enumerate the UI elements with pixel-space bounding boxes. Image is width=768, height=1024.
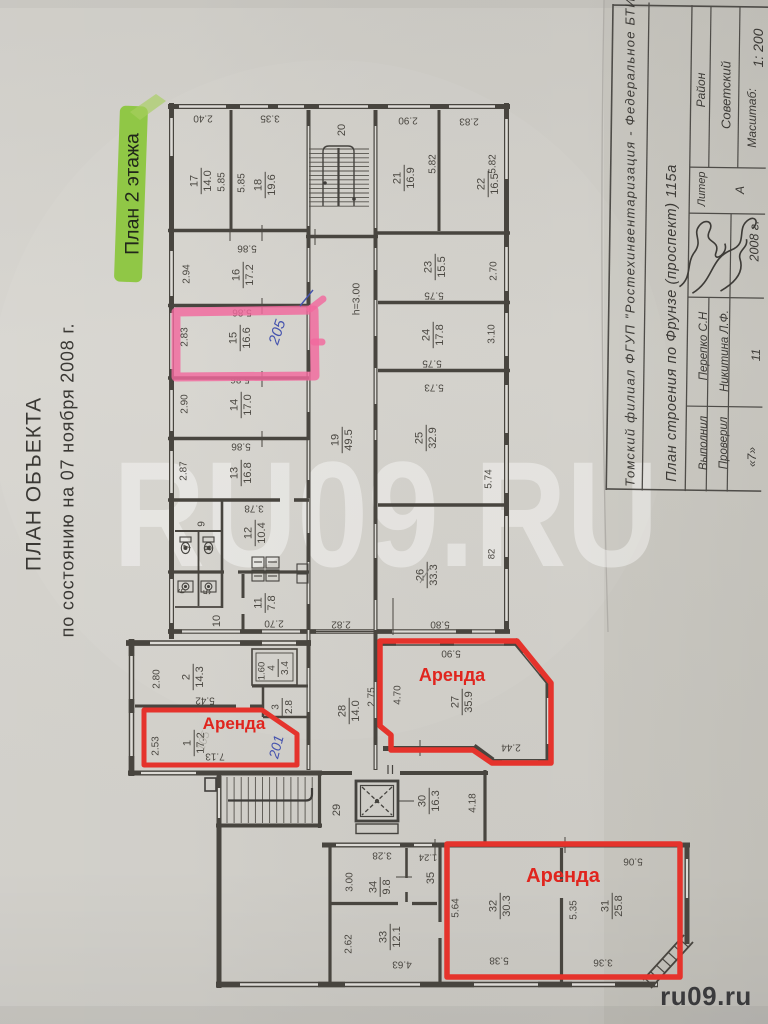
svg-text:14: 14 xyxy=(229,399,241,411)
svg-text:17.8: 17.8 xyxy=(434,324,446,345)
svg-text:5.38: 5.38 xyxy=(489,955,509,966)
svg-text:2.62: 2.62 xyxy=(344,934,355,954)
svg-text:А: А xyxy=(733,186,747,195)
svg-text:2.90: 2.90 xyxy=(180,394,191,414)
svg-text:29: 29 xyxy=(331,804,343,816)
svg-text:7.8: 7.8 xyxy=(266,595,278,610)
svg-text:Литер: Литер xyxy=(696,171,708,207)
svg-text:7.13: 7.13 xyxy=(205,751,225,762)
svg-text:25: 25 xyxy=(414,432,426,444)
svg-text:2.40: 2.40 xyxy=(193,113,213,124)
svg-text:9: 9 xyxy=(197,521,208,527)
svg-text:16: 16 xyxy=(231,269,243,281)
svg-text:2.70: 2.70 xyxy=(489,261,500,281)
svg-text:ПЛАН ОБЪЕКТА: ПЛАН ОБЪЕКТА xyxy=(22,397,45,571)
svg-text:17.0: 17.0 xyxy=(242,394,254,415)
svg-text:18: 18 xyxy=(253,179,265,191)
svg-text:14.0: 14.0 xyxy=(350,700,362,721)
svg-text:5.06: 5.06 xyxy=(623,856,643,867)
svg-text:25.8: 25.8 xyxy=(613,895,625,916)
svg-text:15: 15 xyxy=(228,332,240,344)
svg-text:31: 31 xyxy=(600,900,612,912)
svg-text:2.53: 2.53 xyxy=(151,736,162,756)
svg-text:5.82: 5.82 xyxy=(428,154,439,174)
svg-text:3.10: 3.10 xyxy=(487,324,498,344)
svg-text:2.82: 2.82 xyxy=(331,619,351,630)
svg-text:4.63: 4.63 xyxy=(392,959,412,970)
svg-text:5.75: 5.75 xyxy=(424,290,444,301)
svg-text:5.86: 5.86 xyxy=(231,441,251,452)
svg-text:2: 2 xyxy=(181,674,193,680)
svg-text:2.87: 2.87 xyxy=(179,461,190,481)
svg-text:27: 27 xyxy=(450,696,462,708)
svg-text:2.44: 2.44 xyxy=(501,742,521,753)
svg-text:Масштаб:: Масштаб: xyxy=(745,88,759,147)
svg-text:Аренда: Аренда xyxy=(526,865,601,887)
svg-text:16.6: 16.6 xyxy=(241,327,253,348)
svg-text:19: 19 xyxy=(330,434,342,446)
svg-text:5.73: 5.73 xyxy=(424,382,444,393)
svg-text:17.2: 17.2 xyxy=(244,264,256,285)
svg-text:5.42: 5.42 xyxy=(195,695,215,706)
svg-text:14.0: 14.0 xyxy=(202,170,214,191)
svg-text:3.00: 3.00 xyxy=(345,872,356,892)
svg-text:2.83: 2.83 xyxy=(459,116,479,127)
svg-text:Томский филиал ФГУП "Ростехинв: Томский филиал ФГУП "Ростехинвентаризаци… xyxy=(623,0,638,487)
svg-text:32.9: 32.9 xyxy=(427,427,439,448)
svg-text:4: 4 xyxy=(267,665,278,671)
svg-text:Перепко С.Н: Перепко С.Н xyxy=(698,311,710,380)
svg-text:13: 13 xyxy=(229,467,241,479)
svg-text:12.1: 12.1 xyxy=(391,926,403,947)
svg-text:6: 6 xyxy=(178,588,189,594)
svg-text:2.80: 2.80 xyxy=(152,669,163,689)
svg-text:Район: Район xyxy=(694,72,708,107)
svg-text:22: 22 xyxy=(476,178,488,190)
svg-text:32: 32 xyxy=(488,900,500,912)
svg-text:5: 5 xyxy=(203,589,214,595)
svg-text:План 2 этажа: План 2 этажа xyxy=(121,133,143,255)
svg-text:24: 24 xyxy=(421,329,433,341)
svg-text:21: 21 xyxy=(392,172,404,184)
svg-text:Советский: Советский xyxy=(719,61,734,129)
svg-text:9.8: 9.8 xyxy=(381,879,393,894)
svg-text:16.5: 16.5 xyxy=(489,173,501,194)
svg-text:16.9: 16.9 xyxy=(405,167,417,188)
svg-text:2.83: 2.83 xyxy=(180,327,191,347)
svg-text:Выполнил: Выполнил xyxy=(698,415,710,470)
svg-text:5.80: 5.80 xyxy=(430,619,450,630)
svg-text:12: 12 xyxy=(243,527,255,539)
svg-text:16.3: 16.3 xyxy=(430,790,442,811)
svg-text:Аренда: Аренда xyxy=(203,714,266,733)
svg-text:1: 200: 1: 200 xyxy=(750,28,766,67)
svg-text:82: 82 xyxy=(487,549,498,560)
svg-text:3.35: 3.35 xyxy=(260,113,280,124)
svg-text:23: 23 xyxy=(423,261,435,273)
svg-text:1.24: 1.24 xyxy=(419,852,438,863)
svg-text:16.8: 16.8 xyxy=(242,462,254,483)
svg-text:28: 28 xyxy=(337,705,349,717)
svg-text:33: 33 xyxy=(378,931,390,943)
svg-text:2.94: 2.94 xyxy=(182,264,193,284)
svg-text:«7»: «7» xyxy=(745,447,759,467)
svg-text:1: 1 xyxy=(182,740,194,746)
svg-text:35.9: 35.9 xyxy=(463,691,475,712)
svg-text:5.64: 5.64 xyxy=(451,898,462,918)
svg-text:План строения по Фрунзе (просп: План строения по Фрунзе (проспект) 115а xyxy=(664,164,680,482)
svg-text:h=3.00: h=3.00 xyxy=(351,283,363,316)
svg-text:17: 17 xyxy=(189,175,201,187)
svg-text:3.36: 3.36 xyxy=(593,957,613,968)
svg-text:1.60: 1.60 xyxy=(257,662,268,681)
svg-text:8: 8 xyxy=(204,545,215,551)
svg-text:5.74: 5.74 xyxy=(484,469,495,489)
svg-text:49.5: 49.5 xyxy=(343,429,355,450)
svg-text:3.4: 3.4 xyxy=(280,661,291,675)
svg-text:4.18: 4.18 xyxy=(468,793,479,813)
svg-text:11: 11 xyxy=(253,597,265,608)
svg-text:Аренда: Аренда xyxy=(419,665,486,685)
svg-text:5.75: 5.75 xyxy=(422,358,442,369)
svg-text:10: 10 xyxy=(211,615,223,627)
svg-text:34: 34 xyxy=(368,881,380,893)
svg-text:19.6: 19.6 xyxy=(266,174,278,195)
svg-text:15.5: 15.5 xyxy=(436,256,448,277)
svg-text:5.35: 5.35 xyxy=(569,900,580,920)
svg-text:30: 30 xyxy=(417,795,429,807)
svg-text:2.75: 2.75 xyxy=(367,687,378,707)
svg-text:5.85: 5.85 xyxy=(217,172,228,192)
svg-text:Проверил: Проверил xyxy=(718,416,730,469)
svg-text:5.82: 5.82 xyxy=(488,154,499,174)
svg-text:4.70: 4.70 xyxy=(393,685,404,705)
svg-text:2.70: 2.70 xyxy=(264,618,284,629)
svg-text:5.86: 5.86 xyxy=(237,243,257,254)
svg-text:по состоянию на 07 ноября 2008: по состоянию на 07 ноября 2008 г. xyxy=(57,323,77,638)
svg-text:5.85: 5.85 xyxy=(237,173,248,193)
svg-text:2.8: 2.8 xyxy=(284,700,295,714)
svg-text:Никитина Л.Ф.: Никитина Л.Ф. xyxy=(719,310,731,392)
svg-text:5.90: 5.90 xyxy=(441,648,461,659)
svg-text:ru09.ru: ru09.ru xyxy=(660,981,752,1011)
svg-text:11: 11 xyxy=(749,349,763,361)
svg-text:30.3: 30.3 xyxy=(501,895,513,916)
svg-text:3.28: 3.28 xyxy=(372,850,392,861)
svg-text:14.3: 14.3 xyxy=(194,666,206,687)
svg-text:3.78: 3.78 xyxy=(244,503,264,514)
svg-text:7: 7 xyxy=(183,544,194,550)
svg-text:3: 3 xyxy=(271,704,282,710)
svg-text:10.4: 10.4 xyxy=(256,522,268,543)
svg-text:20: 20 xyxy=(336,124,348,136)
svg-text:2.90: 2.90 xyxy=(398,115,418,126)
svg-text:35: 35 xyxy=(425,872,437,884)
